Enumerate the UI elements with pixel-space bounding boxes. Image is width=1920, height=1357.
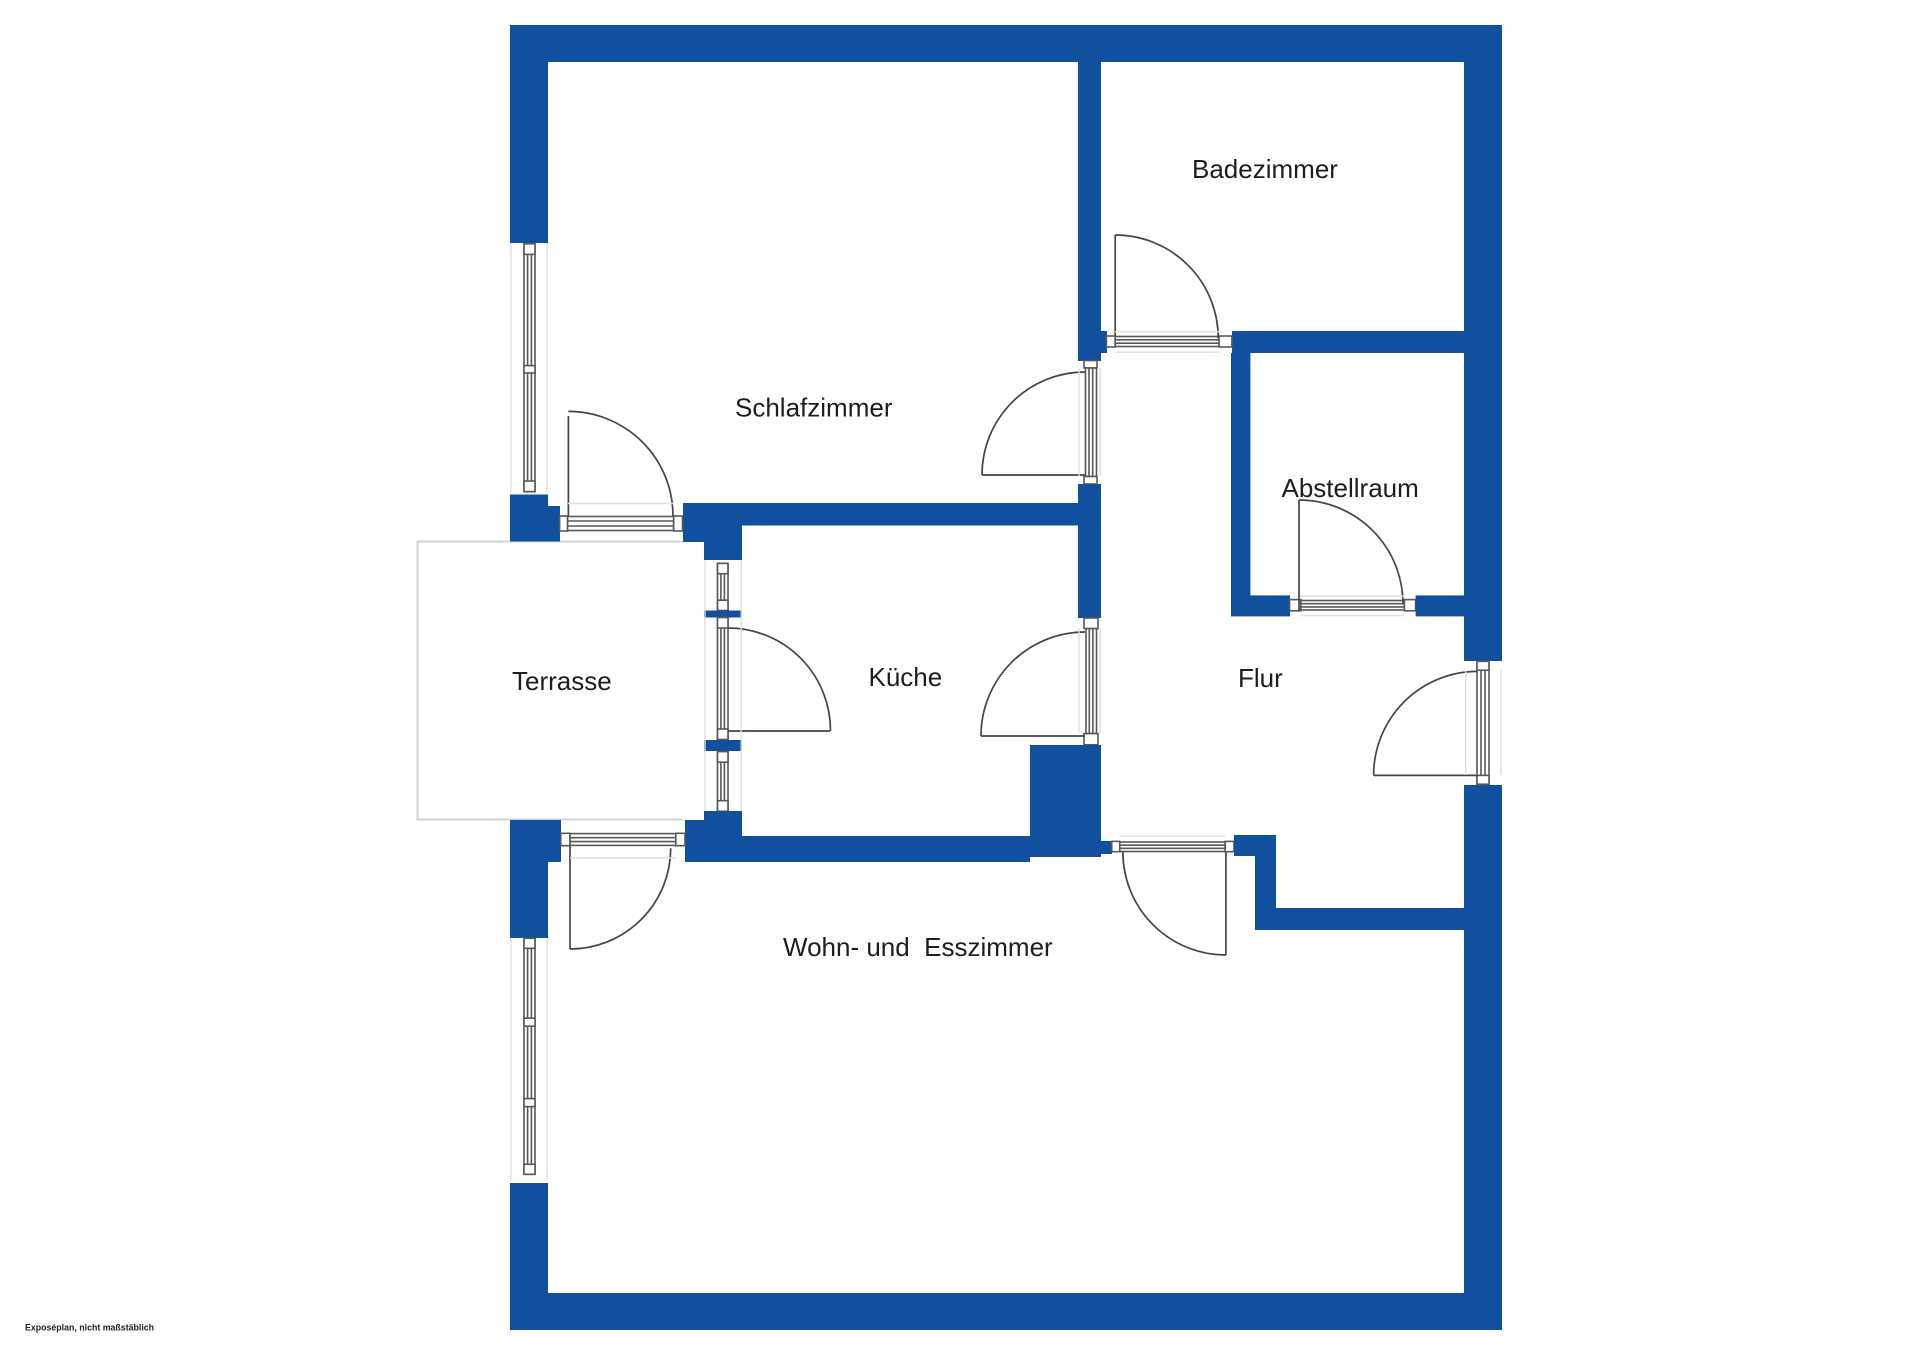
svg-text:Abstellraum: Abstellraum — [1282, 473, 1419, 503]
svg-text:Terrasse: Terrasse — [512, 666, 612, 696]
svg-text:Küche: Küche — [869, 662, 943, 692]
svg-text:Wohn- und Esszimmer: Wohn- und Esszimmer — [783, 932, 1053, 962]
svg-text:Flur: Flur — [1238, 663, 1283, 693]
svg-text:Schlafzimmer: Schlafzimmer — [735, 393, 893, 423]
svg-text:Badezimmer: Badezimmer — [1192, 154, 1338, 184]
svg-text:Exposéplan, nicht maßstäblich: Exposéplan, nicht maßstäblich — [25, 1323, 154, 1333]
